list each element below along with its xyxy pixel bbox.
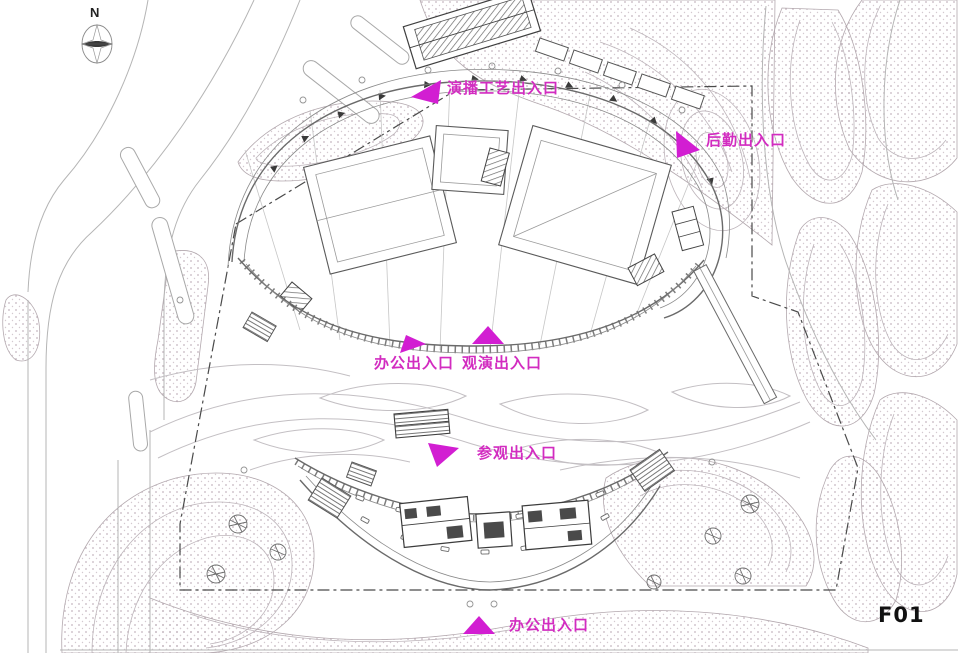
landscape-left-small [3, 295, 40, 361]
floor-code: F01 [878, 603, 925, 627]
landscape-areas [3, 0, 957, 653]
compass-north-label: N [90, 5, 99, 20]
stair-mid [347, 462, 377, 486]
label-broadcast-entrance: 演播工艺出入口 [447, 81, 559, 96]
elevator-core-1 [400, 497, 472, 548]
label-audience-entrance: 观演出入口 [462, 356, 542, 371]
arrow-visitor-entrance [428, 443, 459, 467]
mid-ramp [394, 409, 450, 438]
label-office-entrance-bottom: 办公出入口 [509, 618, 589, 633]
site-plan-page: 演播工艺出入口 后勤出入口 办公出入口 观演出入口 参观出入口 办公出入口 F0… [0, 0, 960, 653]
arrow-audience-entrance [472, 326, 504, 344]
arrow-broadcast-entrance [411, 80, 441, 104]
label-logistics-entrance: 后勤出入口 [706, 133, 786, 148]
service-core-4 [672, 206, 704, 250]
label-office-entrance-mid: 办公出入口 [374, 356, 454, 371]
west-stair [243, 312, 276, 342]
arrow-office-entrance-bottom [463, 616, 495, 634]
elevator-core-3 [522, 500, 592, 550]
compass-rose-icon [82, 25, 112, 63]
label-visitor-entrance: 参观出入口 [477, 446, 557, 461]
site-plan-drawing [0, 0, 960, 653]
east-wing [694, 265, 777, 404]
elevator-core-2 [476, 512, 512, 548]
